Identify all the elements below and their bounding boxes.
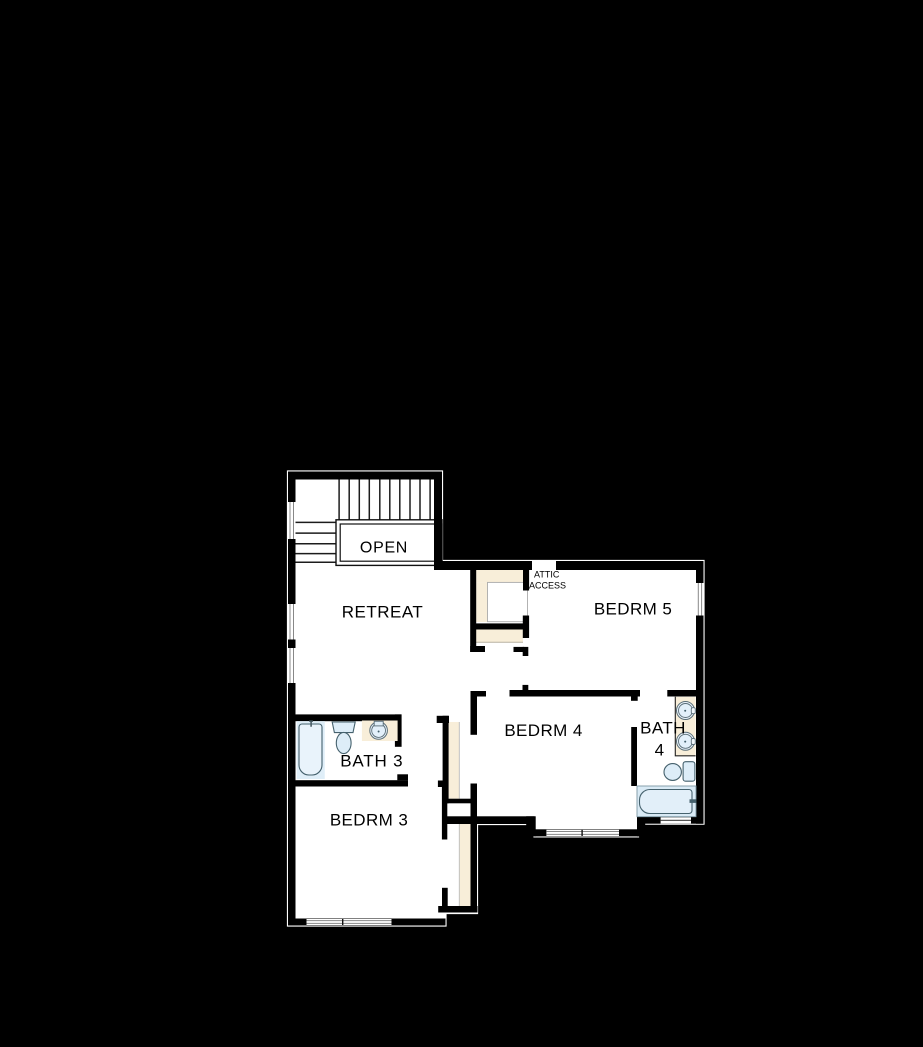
svg-text:BEDRM 3: BEDRM 3 xyxy=(330,811,408,830)
svg-text:RETREAT: RETREAT xyxy=(342,603,424,622)
svg-text:4: 4 xyxy=(655,741,664,760)
svg-text:BATH: BATH xyxy=(640,719,686,738)
svg-text:ACCESS: ACCESS xyxy=(529,581,566,591)
svg-text:BATH 3: BATH 3 xyxy=(340,752,403,771)
svg-text:OPEN: OPEN xyxy=(360,540,408,557)
svg-text:BEDRM 5: BEDRM 5 xyxy=(594,600,672,619)
svg-text:BEDRM 4: BEDRM 4 xyxy=(504,721,582,740)
svg-text:ATTIC: ATTIC xyxy=(534,570,560,580)
